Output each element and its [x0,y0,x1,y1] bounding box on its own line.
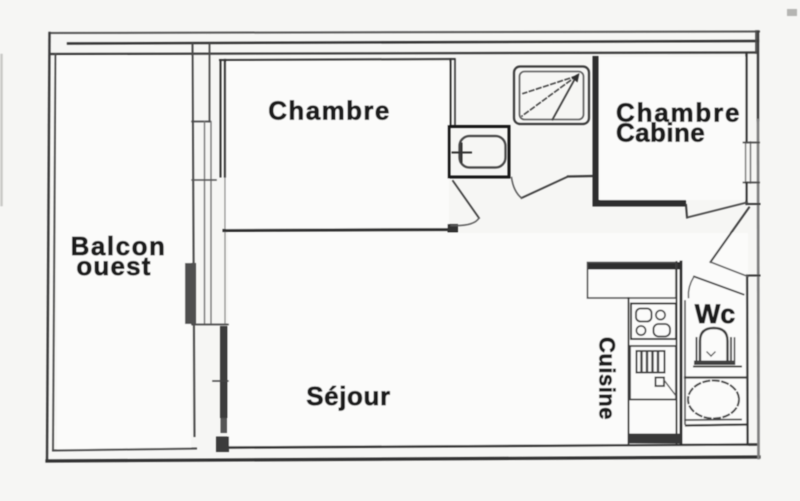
svg-text:Séjour: Séjour [306,381,391,411]
svg-text:Wc: Wc [695,299,736,329]
svg-text:Chambre: Chambre [268,96,391,126]
svg-text:ouest: ouest [76,251,151,281]
svg-text:Cabine: Cabine [616,118,705,148]
svg-text:Cuisine: Cuisine [595,337,620,420]
